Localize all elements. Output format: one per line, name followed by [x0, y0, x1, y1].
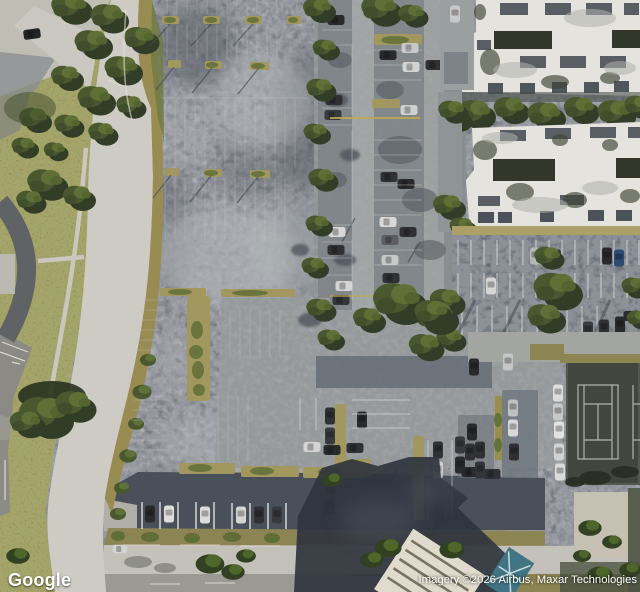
svg-text:Google: Google — [8, 570, 71, 590]
svg-text:Imagery ©2026 Airbus, Maxar Te: Imagery ©2026 Airbus, Maxar Technologies — [419, 574, 638, 586]
